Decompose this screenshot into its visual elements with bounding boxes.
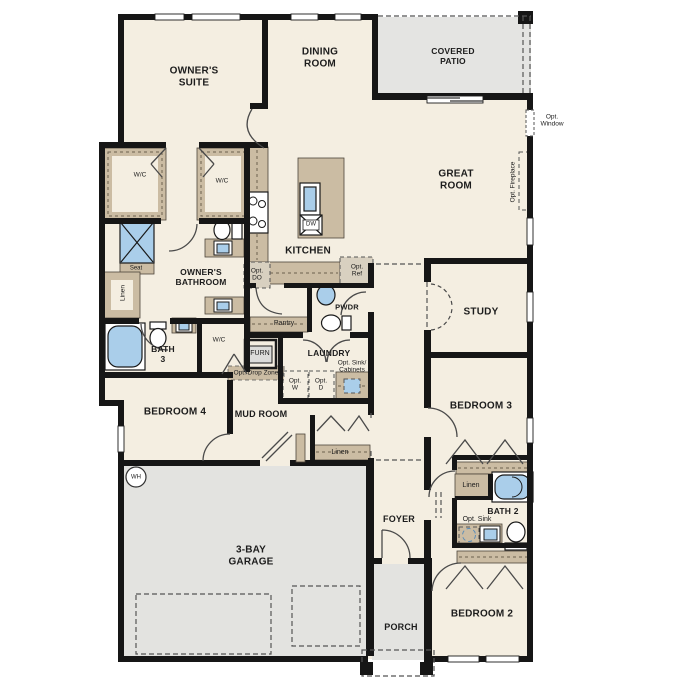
sink-owner-1	[214, 241, 232, 255]
label-wic3: W/C	[213, 336, 226, 343]
label-opt-washer: Opt. W	[289, 378, 301, 393]
label-owners-bathroom: OWNER'S BATHROOM	[175, 268, 226, 288]
floor-plan: OWNER'S SUITE DINING ROOM COVERED PATIO …	[0, 0, 687, 687]
label-line: Cabinets	[338, 367, 367, 374]
label-line: Opt.	[251, 268, 263, 275]
label-opt-sink-cabinets: Opt. Sink/ Cabinets	[338, 360, 367, 375]
label-laundry: LAUNDRY	[308, 349, 351, 359]
sink-owner-2	[214, 299, 232, 312]
sink-island	[300, 183, 320, 215]
opt-laundry-sink	[344, 379, 360, 393]
porch-posts	[360, 662, 433, 675]
label-bedroom3: BEDROOM 3	[450, 400, 512, 412]
label-line: ROOM	[438, 180, 473, 192]
label-linen-hall: Linen	[331, 449, 348, 457]
label-line: Opt. Sink/	[338, 360, 367, 367]
toilet-powder	[322, 315, 352, 331]
sink-bath2	[480, 526, 500, 542]
label-line: Opt.	[351, 264, 363, 271]
label-great-room: GREAT ROOM	[438, 169, 473, 192]
label-opt-double-oven: Opt. DO	[251, 268, 263, 283]
label-dishwasher: DW	[306, 222, 316, 229]
label-wic2: W/C	[216, 177, 229, 184]
label-opt-refrigerator: Opt. Ref	[351, 264, 363, 279]
label-opt-drop-zone: Opt. Drop Zone	[234, 369, 279, 376]
label-opt-fireplace: Opt. Fireplace	[509, 162, 516, 203]
label-garage: 3-BAY GARAGE	[228, 545, 273, 568]
label-line: 3-BAY	[228, 545, 273, 557]
label-covered-patio: COVERED PATIO	[431, 47, 474, 67]
shower	[120, 222, 154, 263]
label-mud-room: MUD ROOM	[235, 409, 288, 419]
label-line: ROOM	[302, 58, 338, 70]
label-bedroom2: BEDROOM 2	[451, 608, 513, 620]
label-line: OWNER'S	[170, 66, 219, 78]
label-line: GARAGE	[228, 556, 273, 568]
label-opt-sink-bath2: Opt. Sink	[463, 516, 492, 524]
label-line: Opt.	[540, 114, 563, 121]
label-opt-window: Opt. Window	[540, 114, 563, 129]
label-wic1: W/C	[134, 171, 147, 178]
label-shower-seat: Seat	[130, 266, 142, 273]
bathtub-bath3	[105, 323, 145, 370]
label-powder-room: PWDR	[335, 304, 359, 313]
label-porch: PORCH	[384, 622, 418, 632]
label-bath3: BATH 3	[151, 345, 175, 365]
label-line: Ref	[351, 271, 363, 278]
label-line: SUITE	[170, 77, 219, 89]
patio-sliding-door	[427, 96, 483, 103]
label-owners-suite: OWNER'S SUITE	[170, 66, 219, 89]
label-bath2: BATH 2	[487, 507, 518, 517]
label-bedroom4: BEDROOM 4	[144, 406, 206, 418]
label-dining-room: DINING ROOM	[302, 47, 338, 70]
label-line: PATIO	[431, 57, 474, 67]
label-kitchen: KITCHEN	[285, 245, 331, 257]
label-line: Opt.	[315, 378, 327, 385]
label-linen-owner: Linen	[119, 285, 126, 301]
label-line: D	[315, 385, 327, 392]
label-line: GREAT	[438, 169, 473, 181]
label-line: Window	[540, 121, 563, 128]
bathtub-bath2	[492, 472, 533, 502]
opt-window-gap	[526, 110, 534, 136]
label-study: STUDY	[464, 306, 499, 318]
label-opt-dryer: Opt. D	[315, 378, 327, 393]
label-line: W	[289, 385, 301, 392]
label-line: BATHROOM	[175, 278, 226, 288]
label-water-heater: WH	[131, 475, 141, 482]
label-line: 3	[151, 355, 175, 365]
label-linen-bath2: Linen	[462, 482, 479, 490]
label-furnace: FURN	[250, 350, 269, 358]
floor-plan-drawing	[0, 0, 687, 687]
label-line: DO	[251, 275, 263, 282]
label-line: Opt.	[289, 378, 301, 385]
label-foyer: FOYER	[383, 514, 415, 524]
label-line: DINING	[302, 47, 338, 59]
label-pantry: Pantry	[274, 320, 294, 328]
